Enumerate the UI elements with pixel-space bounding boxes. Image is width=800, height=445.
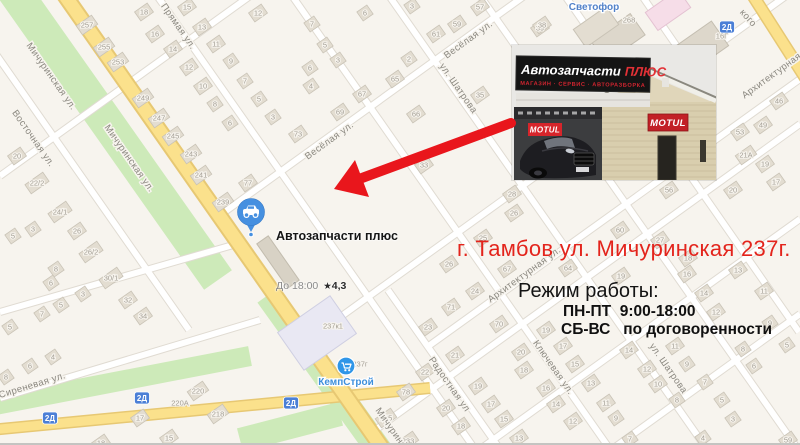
building-number: 66: [412, 110, 420, 119]
building-number: 6: [49, 279, 53, 288]
shop-signboard: АвтозапчастиПЛЮС МАГАЗИН · СЕРВИС · АВТО…: [516, 56, 667, 93]
building-number: 77: [244, 179, 252, 188]
building-number: 220: [192, 387, 205, 396]
building-number: 220А: [171, 399, 189, 408]
building-number: 5: [323, 41, 327, 50]
banner: MOTUL: [514, 107, 602, 180]
building-number: 18: [520, 366, 528, 375]
building-number: 3: [31, 225, 35, 234]
building-number: 6: [228, 119, 232, 128]
building-number: 20: [13, 152, 21, 161]
schedule-title: Режим работы:: [518, 280, 659, 303]
svg-text:2Д: 2Д: [286, 399, 296, 408]
building-number: 15: [165, 434, 173, 443]
building-number: 53: [736, 128, 744, 137]
building-number: 46: [775, 97, 783, 106]
building-number: 67: [358, 90, 366, 99]
building-number: 4: [51, 353, 55, 362]
building-number: 20: [517, 348, 525, 357]
building-number: 218: [212, 410, 225, 419]
building-number: 70: [495, 320, 503, 329]
building-number: 20: [442, 404, 450, 413]
building-number: 255: [98, 43, 111, 52]
building-number: 241: [195, 171, 208, 180]
poi-label[interactable]: КемпСтрой: [318, 377, 373, 388]
building-number: 32: [124, 296, 132, 305]
storefront-photo: .sign1{font:italic bold 13px "Liberation…: [512, 45, 716, 180]
building-number: 28: [508, 190, 516, 199]
building-number: 6: [308, 64, 312, 73]
building-number: 9: [685, 360, 689, 369]
building-number: 15: [183, 3, 191, 12]
building-number: 26: [445, 260, 453, 269]
building-number: 4: [309, 82, 313, 91]
building-number: 15: [500, 415, 508, 424]
building-number: 10: [654, 380, 662, 389]
building-number: 9: [614, 414, 618, 423]
svg-text:2Д: 2Д: [722, 23, 732, 32]
map-screenshot: .bnum{font:7.5px "Liberation Sans",sans-…: [0, 0, 800, 445]
building-number: 247: [153, 114, 166, 123]
building-number: 22: [421, 368, 429, 377]
building-number: 13: [587, 379, 595, 388]
motul-banner-text: MOTUL: [530, 126, 560, 135]
building-number: 243: [185, 150, 198, 159]
building-number: 239: [217, 198, 230, 207]
building-number: 5: [720, 396, 724, 405]
building-number: 12: [254, 9, 262, 18]
building-number: 78: [402, 388, 410, 397]
building-number: 5: [257, 95, 261, 104]
building-number: 8: [213, 100, 217, 109]
building-number: 56: [665, 186, 673, 195]
building-number: 8: [54, 265, 58, 274]
building-number: 13: [198, 23, 206, 32]
building-number: 24: [471, 287, 479, 296]
building-number: 3: [410, 2, 414, 11]
route-badge: 2Д: [720, 21, 735, 33]
building-number: 8: [741, 345, 745, 354]
door: [658, 136, 676, 180]
building-number: 7: [243, 77, 247, 86]
building-number: 17: [559, 342, 567, 351]
building-number: 249: [137, 94, 150, 103]
building-number: 30/1: [104, 274, 119, 283]
building-number: 16: [542, 384, 550, 393]
building-number: 35: [476, 91, 484, 100]
building-number: 253: [112, 58, 125, 67]
schedule-weekdays: ПН-ПТ 9:00-18:00: [563, 303, 696, 321]
building-number: 12: [712, 308, 720, 317]
building-number: 14: [169, 45, 177, 54]
building-number: 257: [81, 21, 94, 30]
building-number: 245: [167, 132, 180, 141]
building-number: 24/1: [53, 208, 68, 217]
building-number: 6: [363, 9, 367, 18]
window: [700, 140, 706, 162]
building-number: 18: [140, 8, 148, 17]
building-number: 61: [432, 30, 440, 39]
building-number: 12: [185, 63, 193, 72]
building-number: 38: [538, 21, 546, 30]
building-number: 11: [760, 287, 768, 296]
building-number: 17: [136, 414, 144, 423]
building-number: 33: [420, 161, 428, 170]
building-number: 14: [625, 346, 633, 355]
marker-subtitle: До 18:00★4,3: [276, 280, 398, 292]
building-number: 69: [336, 108, 344, 117]
building-number: 21А: [739, 151, 752, 160]
building-number: 7: [310, 20, 314, 29]
building-number: 11: [212, 40, 220, 49]
building-number: 14: [700, 289, 708, 298]
sign-text-white: Автозапчасти: [520, 62, 621, 79]
building-number: 268: [623, 16, 636, 25]
marker-title: Автозапчасти плюс: [276, 229, 398, 243]
building-number: 26: [510, 209, 518, 218]
building-number: 26/2: [84, 248, 99, 257]
svg-text:2Д: 2Д: [45, 414, 55, 423]
building-number: 16: [151, 30, 159, 39]
route-badge: 2Д: [284, 397, 299, 409]
building-number: 12: [643, 365, 651, 374]
building-number: 6: [752, 362, 756, 371]
building-number: 5: [785, 341, 789, 350]
building-number: 3: [336, 56, 340, 65]
svg-text:2Д: 2Д: [137, 394, 147, 403]
building-number: 9: [229, 57, 233, 66]
motul-wall-text: MOTUL: [650, 118, 686, 129]
cart-icon: [344, 369, 346, 371]
building-number: 8: [675, 396, 679, 405]
building-number: 12: [569, 417, 577, 426]
sign-text-red: ПЛЮС: [625, 64, 667, 80]
building-number: 34: [139, 312, 147, 321]
building-number: 19: [542, 326, 550, 335]
building-number: 20: [729, 186, 737, 195]
building-number: 3: [271, 113, 275, 122]
building-number: 64: [564, 264, 572, 273]
building-number: 7: [40, 310, 44, 319]
route-badge: 2Д: [43, 412, 58, 424]
marker-rating: 4,3: [332, 280, 347, 292]
svg-text:АвтозапчастиПЛЮС: АвтозапчастиПЛЮС: [520, 62, 667, 80]
building-number: 10: [199, 82, 207, 91]
marker-label[interactable]: Автозапчасти плюс До 18:00★4,3: [276, 193, 398, 328]
building-number: 14: [552, 400, 560, 409]
building-number: 73: [294, 130, 302, 139]
building-number: 65: [391, 75, 399, 84]
schedule-weekend: СБ-ВС по договоренности: [561, 321, 772, 339]
building-number: 17: [772, 178, 780, 187]
cart-icon: [337, 357, 355, 375]
building-number: 13: [515, 434, 523, 443]
building-number: 13: [734, 266, 742, 275]
building-number: 23: [424, 323, 432, 332]
building-number: 26: [73, 227, 81, 236]
building-number: 49: [759, 121, 767, 130]
building-number: 19: [474, 382, 482, 391]
building-number: 4: [701, 434, 705, 443]
building-number: 11: [602, 399, 610, 408]
building-number: 18: [457, 422, 465, 431]
address-annotation: г. Тамбов ул. Мичуринская 237г.: [457, 236, 791, 262]
poi-label[interactable]: Светофор: [569, 1, 619, 13]
building-number: 17: [487, 400, 495, 409]
building-number: 8: [4, 373, 8, 382]
building-number: 11: [671, 342, 679, 351]
star-icon: ★: [323, 281, 332, 292]
building-number: 7: [703, 378, 707, 387]
building-number: 57: [476, 3, 484, 12]
building-number: 59: [453, 20, 461, 29]
building-number: 3: [731, 415, 735, 424]
building-number: 71: [447, 303, 455, 312]
building-number: 5: [8, 323, 12, 332]
building-number: 21: [451, 351, 459, 360]
building-number: 22/2: [30, 179, 45, 188]
building-number: 2: [407, 55, 411, 64]
building-number: 19: [761, 160, 769, 169]
marker-hours: До 18:00: [276, 280, 318, 292]
cart-icon: [348, 369, 350, 371]
building-number: 15: [571, 360, 579, 369]
building-number: 60: [616, 226, 624, 235]
building-number: 67: [503, 265, 511, 274]
kempstroy-poi-icon[interactable]: [337, 357, 355, 375]
building-number: 6: [28, 362, 32, 371]
building-number: 3: [81, 290, 85, 299]
building-number: 5: [59, 301, 63, 310]
route-badge: 2Д: [135, 392, 150, 404]
building-number: 5: [11, 232, 15, 241]
building-number: 16: [683, 270, 691, 279]
